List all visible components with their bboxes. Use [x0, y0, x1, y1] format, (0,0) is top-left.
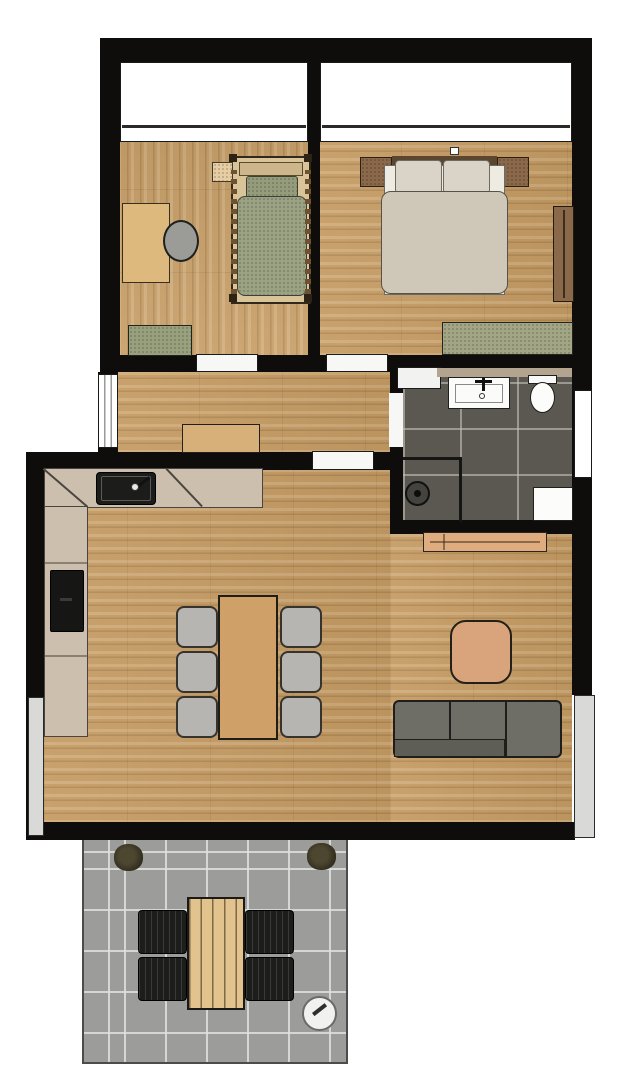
kids-bed-rail-left — [231, 170, 237, 294]
kitchen-faucet-base — [131, 483, 139, 491]
dining-chair-right-2 — [280, 651, 322, 693]
wall-living-bottom — [26, 822, 575, 840]
shower-glass-horizontal — [403, 457, 461, 460]
terrace-planter-right — [307, 843, 336, 870]
master-bench — [442, 322, 573, 355]
kids-bed-rail-right — [305, 170, 311, 294]
wall-top — [100, 38, 592, 62]
dining-table — [218, 595, 278, 740]
kids-bed-post-br — [304, 294, 312, 302]
kids-bench — [128, 325, 192, 356]
cooktop — [50, 570, 84, 632]
window-master-sill-line — [322, 125, 570, 128]
outdoor-chair-left-1 — [138, 910, 187, 954]
vanity-drain — [479, 393, 485, 399]
tv-sideboard-divider — [443, 534, 445, 550]
dining-chair-left-3 — [176, 696, 218, 738]
hallway-sideboard — [182, 424, 260, 453]
tv-sideboard-line — [430, 541, 540, 543]
shower-drain-dot — [414, 490, 421, 497]
kids-bed-duvet — [237, 196, 307, 296]
floor-living-left — [44, 469, 390, 823]
washer-cabinet — [533, 487, 573, 521]
outdoor-chair-right-2 — [245, 957, 294, 1001]
dining-chair-left-1 — [176, 606, 218, 648]
window-master-bedroom — [320, 62, 572, 142]
kids-bed-post-tl — [229, 154, 237, 162]
master-pillow-left — [395, 160, 442, 194]
sofa-divider-2 — [505, 701, 507, 757]
outdoor-chair-right-1 — [245, 910, 294, 954]
cooktop-mark — [60, 598, 72, 601]
kids-bed-pillow — [246, 176, 298, 198]
master-bed-duvet — [381, 191, 508, 294]
kids-bed-post-bl — [229, 294, 237, 302]
kids-bed-post-tr — [304, 154, 312, 162]
terrace-planter-left — [114, 844, 143, 871]
master-pillow-right — [443, 160, 490, 194]
bathroom-door-opening — [389, 393, 403, 447]
entry-door — [98, 374, 118, 448]
kids-desk-chair — [163, 220, 199, 262]
door-hallway-living — [312, 451, 374, 470]
window-bathroom-right — [574, 390, 592, 478]
master-wardrobe-line — [563, 210, 565, 298]
coffee-table — [450, 620, 512, 684]
kitchen-counter-seam-1 — [45, 562, 87, 564]
door-kids-bedroom — [196, 354, 258, 372]
kids-side-table — [212, 162, 233, 182]
window-living-left — [28, 697, 44, 836]
window-living-right — [574, 695, 595, 838]
outdoor-table — [187, 897, 245, 1010]
kitchen-counter-seam-2 — [45, 655, 87, 657]
shower-glass-vertical — [459, 457, 462, 522]
toilet-bowl — [530, 382, 555, 413]
bathroom-door-leaf — [397, 367, 441, 389]
vanity-faucet-cross — [475, 380, 492, 383]
kids-bed-headboard — [239, 162, 303, 176]
sofa-backrest — [394, 739, 505, 757]
outdoor-chair-left-2 — [138, 957, 187, 1001]
window-kids-sill-line — [122, 125, 306, 128]
wall-bedrooms-left — [100, 38, 120, 372]
dining-chair-right-3 — [280, 696, 322, 738]
dining-chair-right-1 — [280, 606, 322, 648]
floor-plan — [0, 0, 631, 1068]
window-kids-bedroom — [120, 62, 308, 142]
bbq-grill — [302, 996, 337, 1031]
dining-chair-left-2 — [176, 651, 218, 693]
door-master-bedroom — [326, 354, 388, 372]
master-wall-socket — [450, 147, 459, 155]
